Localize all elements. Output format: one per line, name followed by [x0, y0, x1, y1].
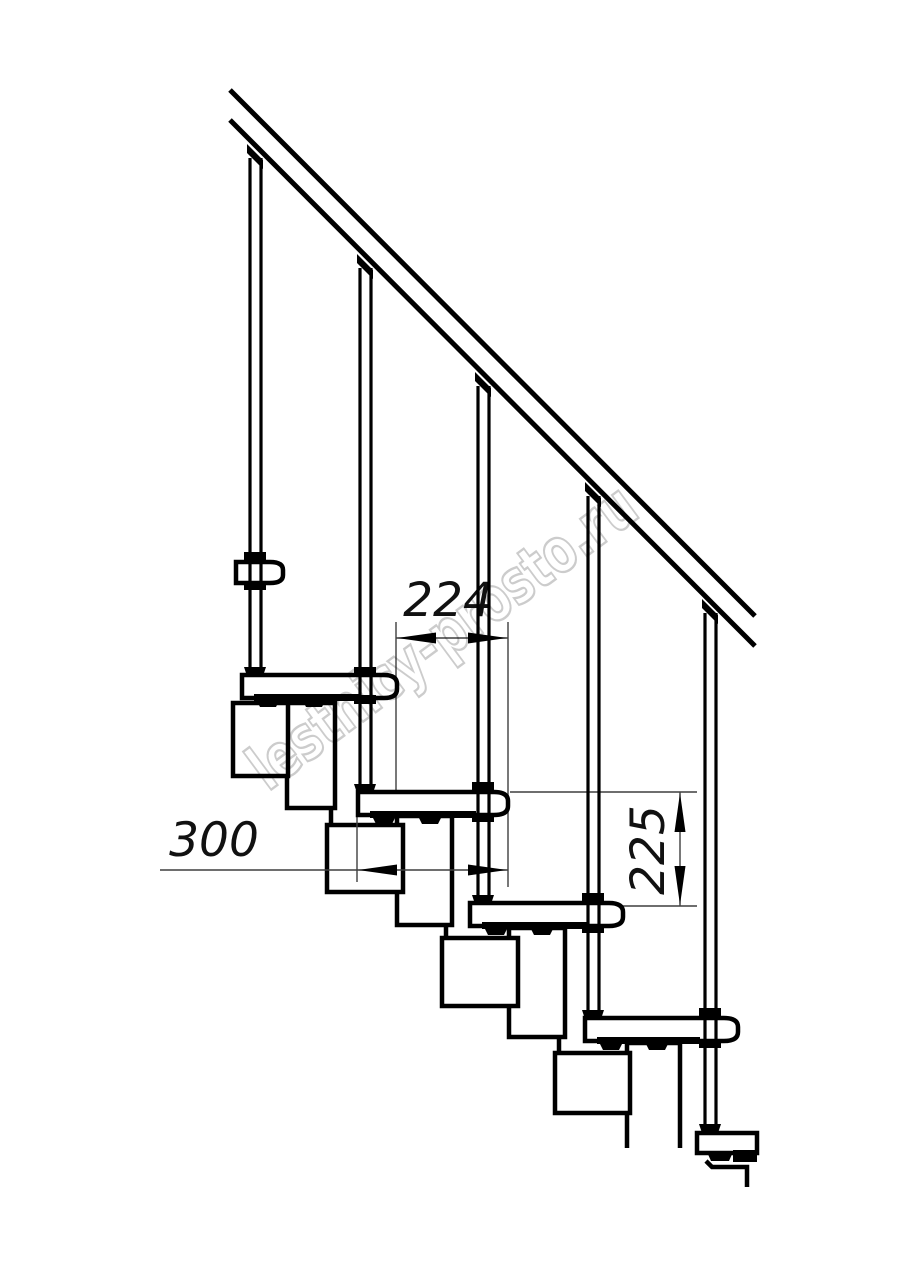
tread-collar: [244, 552, 266, 562]
support-box: [327, 825, 403, 892]
handrail-top-line: [230, 90, 755, 616]
staircase-technical-drawing: 224 300 225: [0, 0, 914, 1280]
baluster-base: [472, 895, 494, 904]
riser-dimension-label: 225: [621, 805, 676, 895]
support-box: [442, 938, 518, 1006]
tread-depth-dimension-label: 300: [169, 813, 259, 868]
baluster-base: [699, 1124, 721, 1133]
tread-collar: [699, 1039, 721, 1048]
support-column: [627, 1043, 680, 1148]
tread-collar: [472, 813, 494, 822]
arrowhead-down: [675, 866, 686, 905]
arrowhead-up: [675, 793, 686, 832]
baluster-base: [244, 667, 266, 676]
tread-collar: [582, 893, 604, 903]
tread-collar: [244, 581, 266, 590]
drawing-canvas: 224 300 225: [0, 0, 914, 1280]
tread-collar: [472, 782, 494, 792]
baluster-base: [582, 1010, 604, 1019]
baluster-base: [354, 784, 376, 793]
baluster-1: [244, 144, 266, 676]
support-box: [555, 1053, 630, 1113]
dimension-riser: 225: [621, 793, 686, 905]
tread-collar: [699, 1008, 721, 1018]
tread-5: [697, 1133, 757, 1187]
tread-collar: [582, 924, 604, 933]
baluster-5: [699, 599, 721, 1133]
